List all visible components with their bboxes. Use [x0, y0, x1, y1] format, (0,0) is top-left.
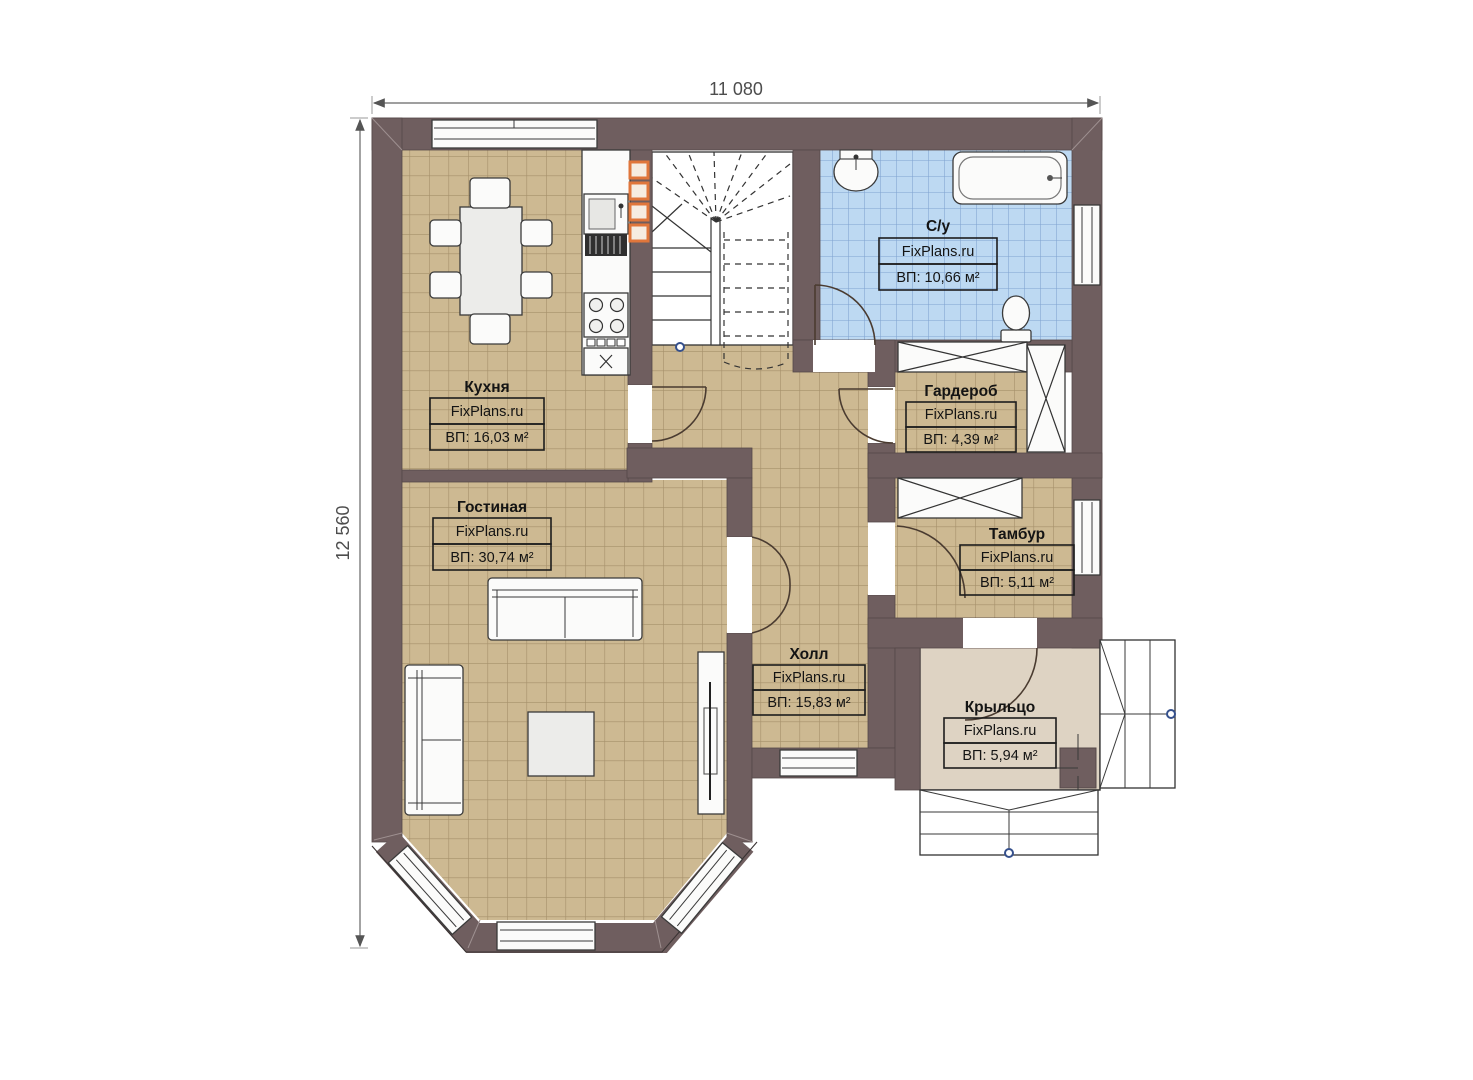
dimension-top: 11 080	[372, 79, 1100, 114]
floor-plan-drawing: 11 080 12 560	[0, 0, 1473, 1080]
vestibule-window	[1074, 500, 1100, 575]
chair	[521, 220, 552, 246]
room-name: Холл	[790, 646, 829, 663]
room-name: С/у	[926, 218, 951, 235]
chair	[470, 314, 510, 344]
sofa-vertical	[405, 665, 463, 815]
wardrobe-closet-top	[898, 342, 1027, 372]
toilet	[1001, 296, 1031, 342]
room-area: ВП: 5,94 м²	[962, 748, 1037, 764]
stairs-marker-dot	[676, 343, 684, 351]
floor-plan-canvas: 11 080 12 560	[0, 0, 1473, 1080]
dishwasher	[584, 348, 628, 375]
room-area: ВП: 16,03 м²	[445, 430, 528, 446]
room-watermark: FixPlans.ru	[773, 670, 846, 686]
room-watermark: FixPlans.ru	[902, 244, 975, 260]
chair	[470, 178, 510, 208]
room-area: ВП: 15,83 м²	[767, 695, 850, 711]
room-area: ВП: 4,39 м²	[923, 432, 998, 448]
tv-stand	[698, 652, 724, 814]
bathroom-sink	[834, 150, 878, 191]
bay-window-center	[497, 922, 595, 950]
vestibule-closet	[898, 478, 1022, 518]
porch-steps-right	[1100, 640, 1175, 788]
room-watermark: FixPlans.ru	[451, 404, 524, 420]
bathtub	[953, 152, 1067, 204]
sofa-horizontal	[488, 578, 642, 640]
room-name: Гардероб	[924, 383, 997, 400]
coffee-table	[528, 712, 594, 776]
dish-rack	[585, 234, 627, 256]
chair	[521, 272, 552, 298]
room-area: ВП: 30,74 м²	[450, 550, 533, 566]
room-watermark: FixPlans.ru	[925, 407, 998, 423]
kitchen-window	[432, 120, 597, 148]
kitchen-counter	[582, 150, 630, 375]
room-name: Крыльцо	[965, 699, 1036, 716]
wardrobe-closet-right	[1027, 345, 1065, 452]
dimension-top-label: 11 080	[709, 79, 763, 99]
porch-steps-bottom	[920, 790, 1098, 857]
chair	[430, 220, 461, 246]
room-name: Кухня	[464, 379, 509, 396]
kitchen-sink	[584, 194, 628, 234]
room-watermark: FixPlans.ru	[964, 723, 1037, 739]
hall-window	[780, 750, 857, 776]
room-area: ВП: 5,11 м²	[980, 575, 1054, 591]
chair	[430, 272, 461, 298]
room-name: Тамбур	[989, 526, 1045, 543]
dimension-left: 12 560	[333, 118, 368, 948]
staircase	[652, 152, 793, 369]
room-name: Гостиная	[457, 499, 527, 516]
dimension-left-label: 12 560	[333, 505, 353, 560]
bathroom-window	[1074, 205, 1100, 285]
room-watermark: FixPlans.ru	[981, 550, 1054, 566]
room-area: ВП: 10,66 м²	[896, 270, 979, 286]
room-watermark: FixPlans.ru	[456, 524, 529, 540]
